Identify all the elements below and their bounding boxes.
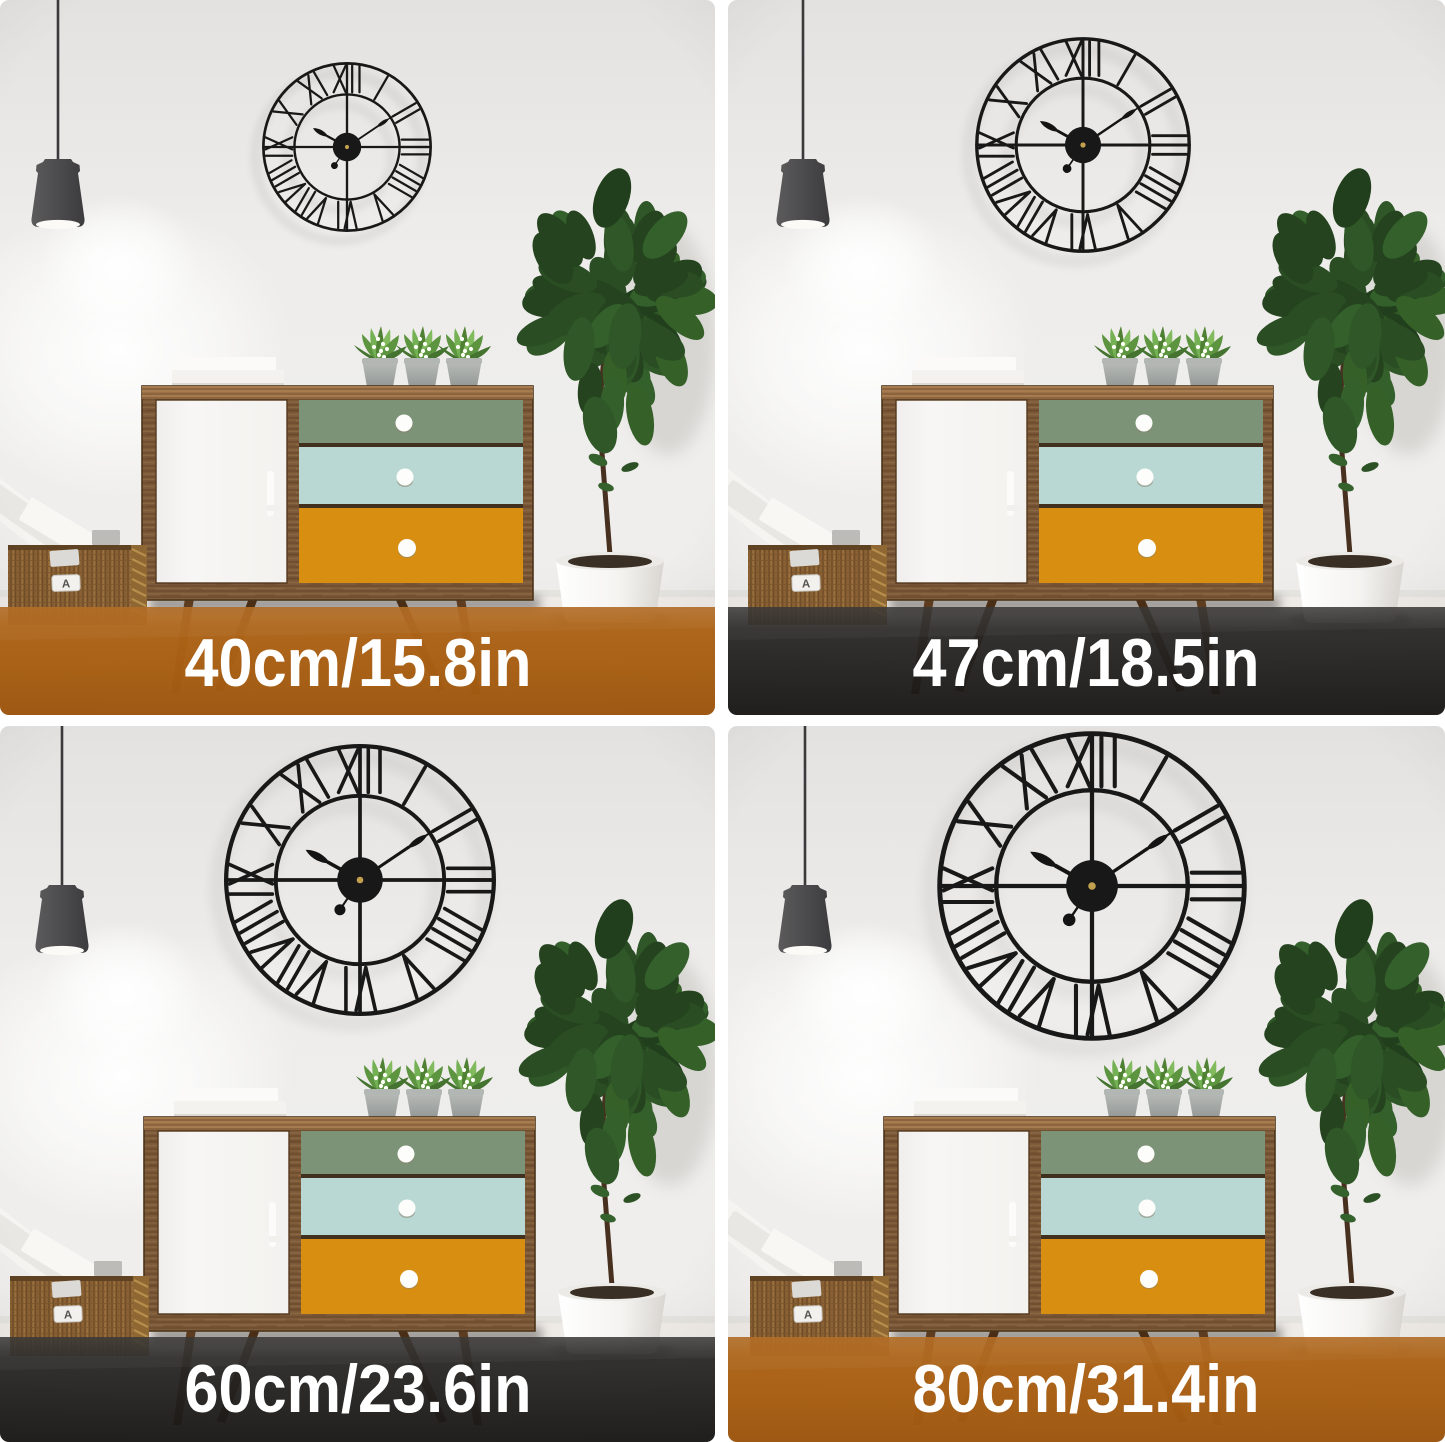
- svg-text:47cm/18.5in: 47cm/18.5in: [913, 625, 1260, 701]
- svg-text:40cm/15.8in: 40cm/15.8in: [185, 625, 532, 701]
- svg-text:80cm/31.4in: 80cm/31.4in: [913, 1351, 1260, 1427]
- svg-text:60cm/23.6in: 60cm/23.6in: [185, 1351, 532, 1427]
